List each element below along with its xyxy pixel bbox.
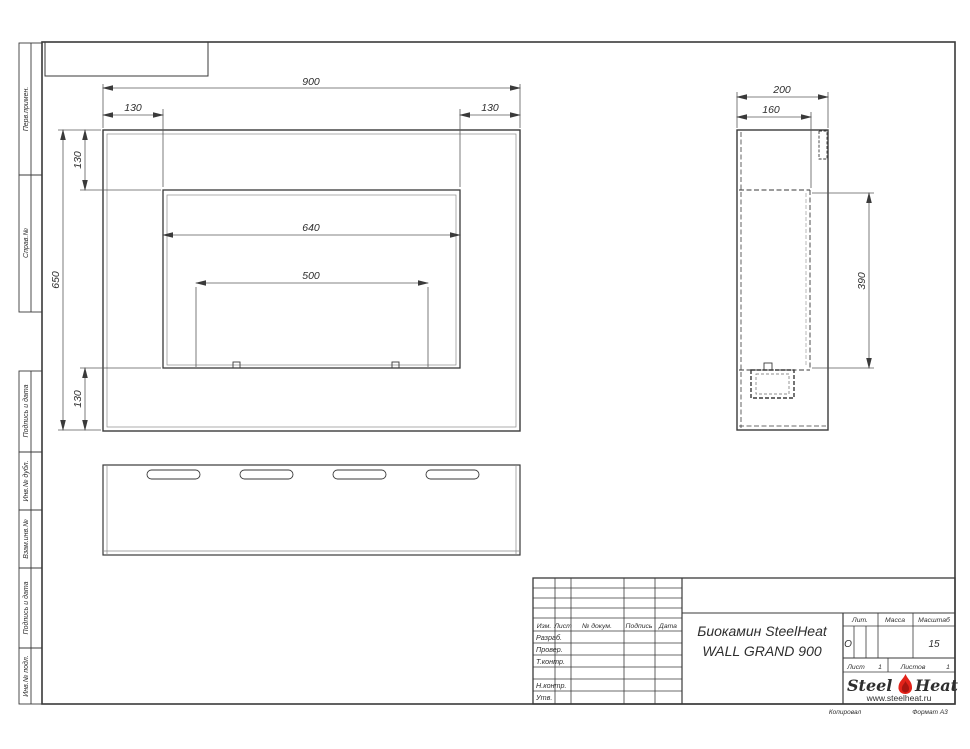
tb-sheet-value: 1	[878, 664, 882, 671]
drawing-sheet: Перв.примен. Справ.№ Подпись и дата Инв.…	[0, 0, 970, 749]
front-view: 900 130 130 650 130 130 640 500	[50, 76, 520, 431]
dim-front-overall-width: 900	[302, 76, 320, 88]
vent-slot-1	[147, 470, 200, 479]
bottom-view	[103, 465, 520, 555]
dim-front-top-offset: 130	[72, 151, 84, 169]
doc-title-line1: Биокамин SteelHeat	[697, 623, 828, 639]
footer-format-label: Формат А3	[912, 709, 948, 716]
margin-label-inv-podl: Инв.№ подл.	[22, 655, 30, 697]
tb-header-docnum: № докум.	[582, 622, 612, 630]
margin-label-podpis-data-2: Подпись и дата	[22, 581, 30, 634]
side-view-dimension-lines	[737, 92, 874, 368]
tb-sheets-label: Листов	[900, 664, 926, 671]
drawing-canvas: Перв.примен. Справ.№ Подпись и дата Инв.…	[0, 0, 970, 749]
tb-header-izm: Изм.	[537, 623, 552, 630]
front-view-dimension-lines	[58, 84, 520, 430]
tb-header-list: Лист	[553, 623, 572, 630]
tb-row-developed: Разраб.	[536, 633, 562, 642]
dim-front-burner-width: 500	[302, 270, 320, 282]
sheet-frame	[42, 42, 955, 704]
burner-box-inner	[756, 374, 789, 394]
dim-front-bottom-offset: 130	[72, 390, 84, 408]
tb-header-signature: Подпись	[626, 622, 653, 630]
margin-label-perv-primen: Перв.примен.	[23, 87, 30, 132]
dim-side-overall-depth: 200	[772, 84, 791, 96]
margin-stamp-labels: Перв.примен. Справ.№ Подпись и дата Инв.…	[22, 87, 30, 697]
vent-slot-3	[333, 470, 386, 479]
dim-front-opening-width: 640	[302, 222, 320, 234]
tb-row-checked: Провер.	[536, 645, 563, 654]
title-block: Изм. Лист № докум. Подпись Дата Разраб. …	[533, 578, 959, 704]
dim-front-right-offset: 130	[481, 102, 499, 114]
tb-header-date: Дата	[658, 623, 677, 630]
margin-label-vzam-inv: Взам.инв.№	[23, 519, 30, 559]
dim-side-opening-height: 390	[856, 272, 868, 290]
footer-copied-label: Копировал	[829, 709, 862, 716]
tb-scale-label: Масштаб	[918, 616, 951, 624]
side-view: 200 160 390	[737, 84, 874, 430]
vent-slot-4	[426, 470, 479, 479]
brand-logo: Steel Heat www.steelheat.ru	[847, 674, 959, 703]
margin-label-inv-dubl: Инв.№ дубл.	[22, 460, 30, 501]
dim-front-overall-height: 650	[50, 271, 62, 289]
dim-side-inner-depth: 160	[762, 104, 780, 116]
tb-row-tcontrol: Т.контр.	[536, 657, 565, 666]
tb-lit-value: О	[844, 639, 852, 650]
margin-label-sprav: Справ.№	[23, 228, 30, 258]
tb-sheets-value: 1	[946, 664, 950, 671]
dim-front-left-offset: 130	[124, 102, 142, 114]
doc-title-line2: WALL GRAND 900	[702, 643, 822, 659]
tb-row-approved: Утв.	[535, 693, 552, 702]
tb-mass-label: Масса	[885, 617, 905, 624]
margin-label-podpis-data-1: Подпись и дата	[22, 384, 30, 437]
brand-website: www.steelheat.ru	[866, 693, 932, 703]
tb-scale-value: 15	[928, 639, 940, 650]
flame-icon	[898, 674, 912, 694]
tb-lit-label: Лит.	[851, 617, 868, 624]
vent-slot-2	[240, 470, 293, 479]
tb-sheet-label: Лист	[846, 664, 865, 671]
tb-row-ncontrol: Н.контр.	[536, 681, 566, 690]
side-burner-tab	[764, 363, 772, 370]
mount-bracket	[819, 131, 827, 159]
